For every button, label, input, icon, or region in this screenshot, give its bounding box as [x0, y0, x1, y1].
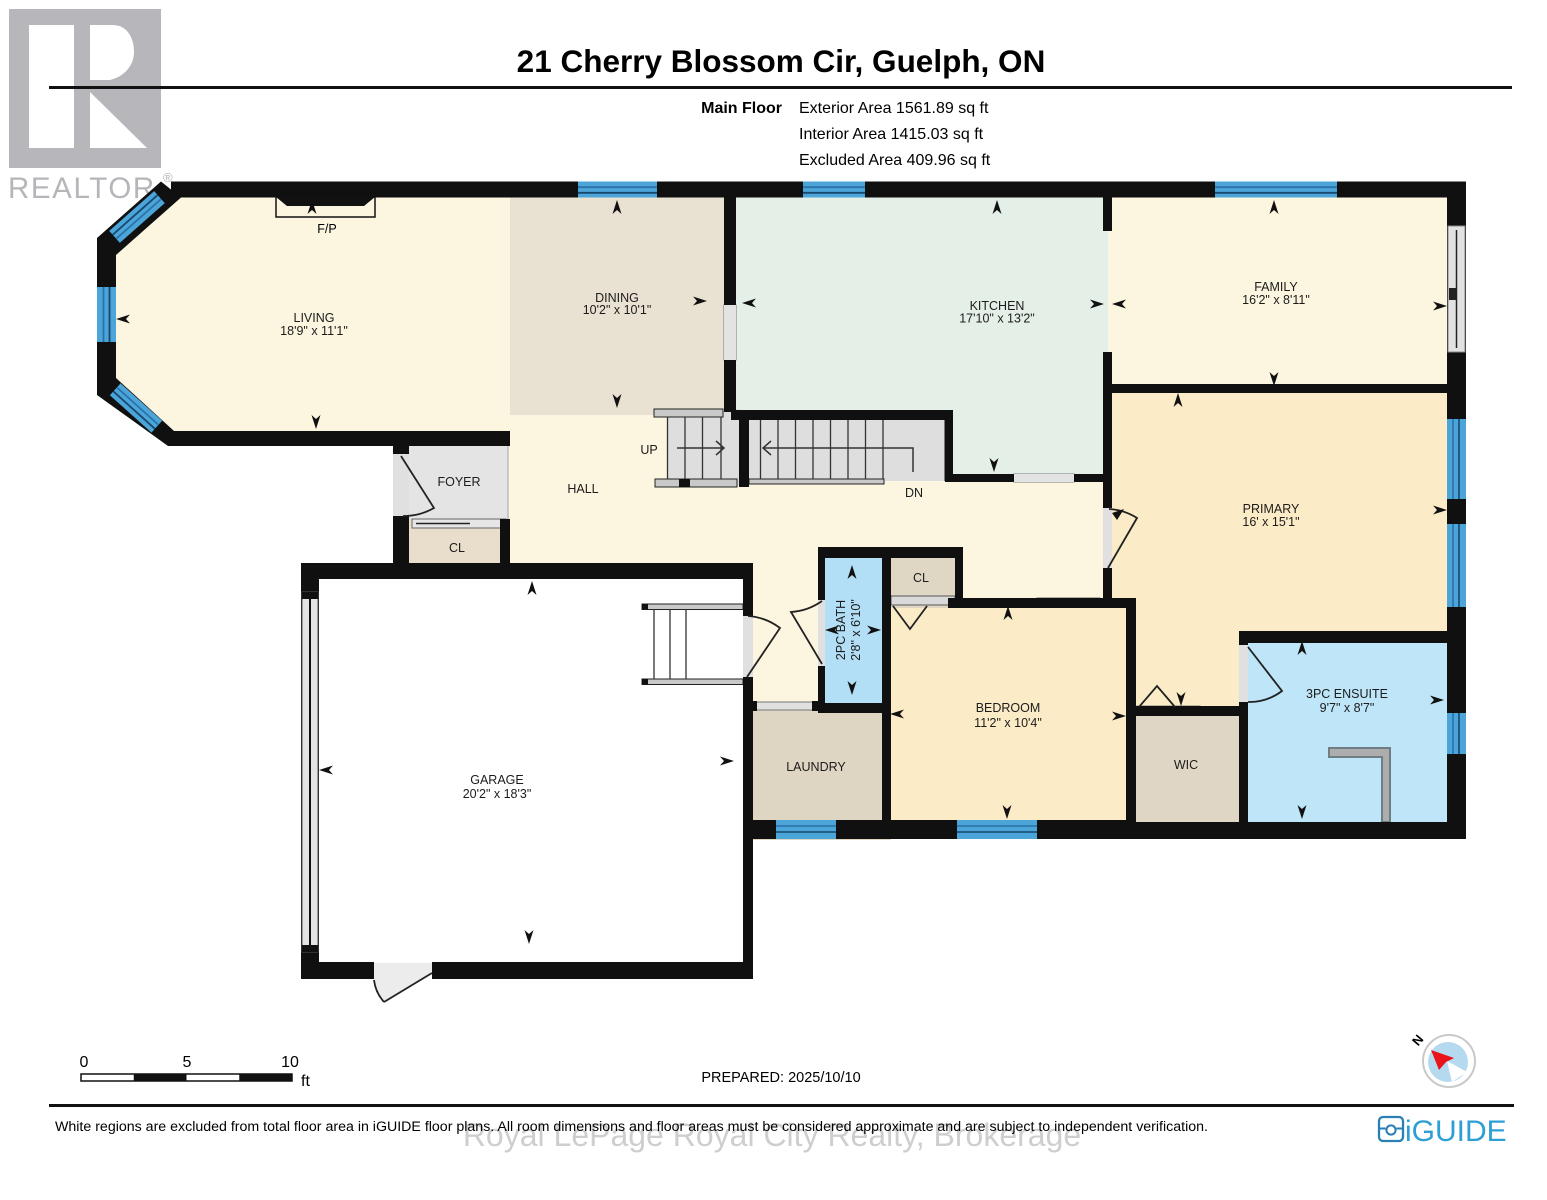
svg-text:Main Floor: Main Floor	[701, 100, 782, 117]
svg-text:CL: CL	[913, 571, 929, 585]
svg-text:ft: ft	[301, 1073, 310, 1090]
svg-text:F/P: F/P	[317, 222, 336, 236]
svg-text:0: 0	[80, 1054, 89, 1071]
svg-text:10'2" x 10'1": 10'2" x 10'1"	[583, 303, 652, 317]
svg-text:PREPARED: 2025/10/10: PREPARED: 2025/10/10	[701, 1070, 860, 1086]
svg-text:FAMILY: FAMILY	[1254, 280, 1298, 294]
svg-text:21 Cherry Blossom Cir, Guelph,: 21 Cherry Blossom Cir, Guelph, ON	[517, 43, 1046, 79]
svg-text:LAUNDRY: LAUNDRY	[786, 760, 846, 774]
svg-text:FOYER: FOYER	[437, 475, 480, 489]
svg-text:3PC ENSUITE: 3PC ENSUITE	[1306, 687, 1388, 701]
svg-text:BEDROOM: BEDROOM	[976, 701, 1041, 715]
svg-text:HALL: HALL	[567, 482, 598, 496]
svg-text:11'2" x 10'4": 11'2" x 10'4"	[974, 716, 1042, 730]
svg-text:5: 5	[183, 1054, 192, 1071]
svg-text:GARAGE: GARAGE	[470, 773, 524, 787]
svg-text:iGUIDE: iGUIDE	[1405, 1115, 1507, 1148]
svg-text:UP: UP	[640, 443, 657, 457]
svg-text:DN: DN	[905, 486, 923, 500]
svg-text:18'9" x 11'1": 18'9" x 11'1"	[280, 324, 348, 338]
svg-text:PRIMARY: PRIMARY	[1243, 502, 1300, 516]
svg-text:20'2" x 18'3": 20'2" x 18'3"	[463, 787, 532, 801]
svg-text:16' x 15'1": 16' x 15'1"	[1242, 515, 1299, 529]
svg-text:16'2" x 8'11": 16'2" x 8'11"	[1242, 293, 1310, 307]
svg-text:Interior Area 1415.03 sq ft: Interior Area 1415.03 sq ft	[799, 126, 984, 143]
svg-text:Exterior Area 1561.89 sq ft: Exterior Area 1561.89 sq ft	[799, 100, 989, 117]
svg-text:CL: CL	[449, 541, 465, 555]
svg-text:2'8" x 6'10": 2'8" x 6'10"	[849, 599, 863, 661]
svg-text:REALTOR: REALTOR	[8, 172, 156, 205]
svg-text:Excluded Area 409.96 sq ft: Excluded Area 409.96 sq ft	[799, 152, 991, 169]
svg-text:9'7" x 8'7": 9'7" x 8'7"	[1320, 701, 1375, 715]
svg-text:2PC BATH: 2PC BATH	[834, 600, 848, 660]
svg-text:17'10" x 13'2": 17'10" x 13'2"	[959, 312, 1035, 326]
svg-text:LIVING: LIVING	[294, 311, 335, 325]
svg-text:White regions are excluded fro: White regions are excluded from total fl…	[55, 1119, 1208, 1135]
svg-text:WIC: WIC	[1174, 758, 1198, 772]
svg-text:10: 10	[281, 1054, 299, 1071]
